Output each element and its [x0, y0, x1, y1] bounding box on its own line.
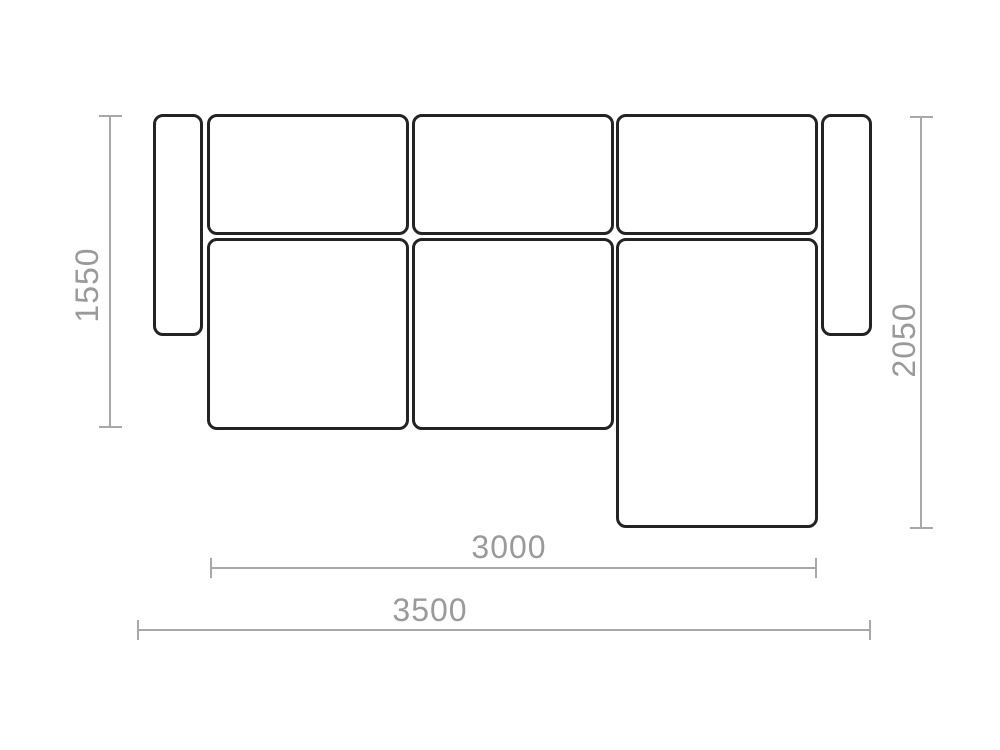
dimension-label-total-width: 3500 [360, 592, 500, 628]
seat-cushion-middle [412, 238, 614, 430]
back-cushion-right [616, 114, 818, 235]
left-armrest [153, 114, 203, 336]
dimension-label-depth-left: 1550 [69, 215, 105, 355]
back-cushion-left [207, 114, 409, 235]
tick-depth-right-top [910, 116, 933, 118]
tick-depth-left-top [99, 115, 122, 117]
dimension-line-total-width [138, 629, 871, 631]
tick-depth-right-bottom [910, 527, 933, 529]
dimension-line-inner-width [211, 567, 817, 569]
back-cushion-middle [412, 114, 614, 235]
chaise-module [616, 238, 818, 528]
tick-total-width-right [869, 620, 871, 640]
tick-inner-width-right [815, 558, 817, 578]
tick-depth-left-bottom [99, 426, 122, 428]
sofa-dimension-diagram: 1550 2050 3000 3500 [0, 0, 1000, 750]
dimension-line-depth-left [109, 116, 111, 427]
dimension-label-depth-right: 2050 [886, 270, 922, 410]
tick-total-width-left [137, 620, 139, 640]
tick-inner-width-left [210, 558, 212, 578]
right-armrest [821, 114, 872, 336]
dimension-label-inner-width: 3000 [439, 529, 579, 565]
seat-cushion-left [207, 238, 409, 430]
